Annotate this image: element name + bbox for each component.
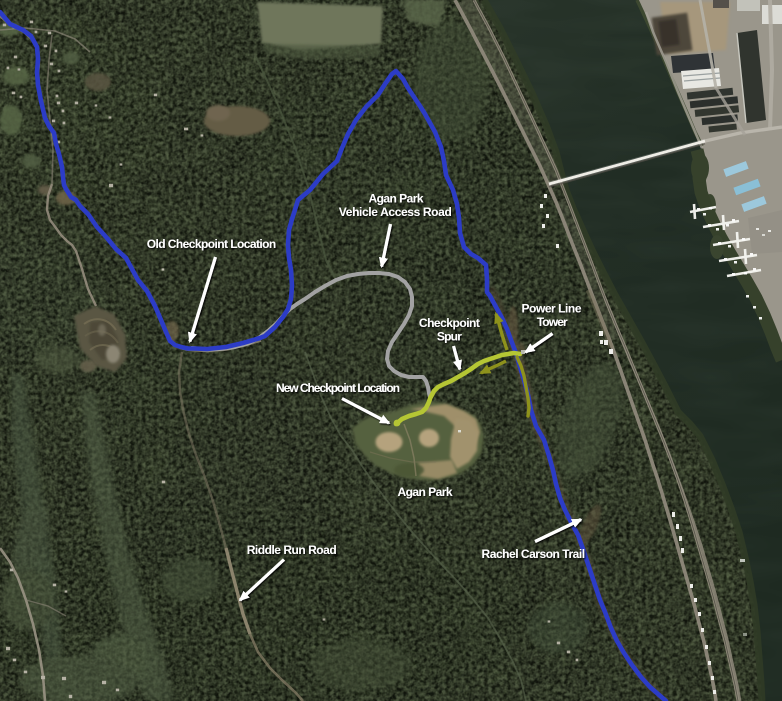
svg-text:Tower: Tower	[537, 315, 568, 329]
svg-text:Agan Park: Agan Park	[398, 485, 453, 499]
svg-text:Rachel Carson Trail: Rachel Carson Trail	[482, 547, 586, 561]
svg-text:Spur: Spur	[437, 329, 462, 343]
svg-text:Agan Park: Agan Park	[369, 191, 424, 205]
svg-text:Old Checkpoint Location: Old Checkpoint Location	[147, 237, 277, 251]
svg-text:Riddle Run Road: Riddle Run Road	[247, 543, 337, 557]
svg-text:Power Line: Power Line	[522, 302, 582, 316]
svg-text:Vehicle Access Road: Vehicle Access Road	[339, 205, 452, 219]
svg-text:New Checkpoint Location: New Checkpoint Location	[276, 381, 400, 395]
svg-text:Checkpoint: Checkpoint	[419, 316, 480, 330]
